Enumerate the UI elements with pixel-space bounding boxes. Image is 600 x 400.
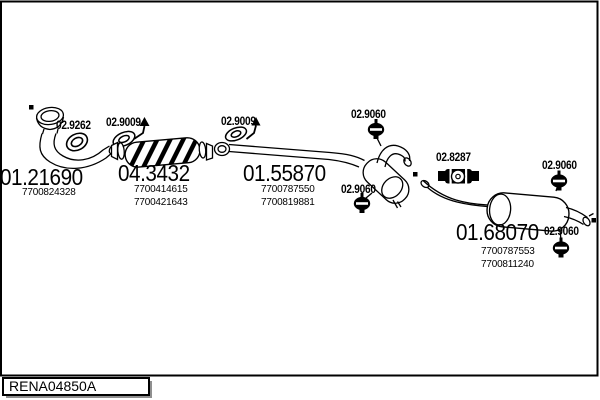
rubber-hanger-icon-1 [368,119,384,139]
fitting-code-clamp-ring: 02.9262 [56,120,91,132]
sleeve-clamp-icon [438,169,479,184]
oem-ref-label: 7700787553 [481,245,535,257]
drawing-reference-tab[interactable]: RENA04850A [2,377,150,396]
fitting-code-hanger-1: 02.9060 [351,109,386,121]
rubber-hanger-icon-4 [553,238,569,258]
oem-ref-label: 7700414615 [134,183,188,195]
oem-ref-label: 7700811240 [481,258,534,270]
fitting-code-hanger-3: 02.9060 [542,160,577,172]
rubber-hanger-icon-3 [551,171,567,191]
oem-ref-label: 7700824328 [22,186,76,198]
oem-ref-label: 7700787550 [261,183,315,195]
fitting-code-gasket-front: 02.9009 [106,117,141,129]
clamp-ring-icon [64,130,91,154]
exhaust-diagram-canvas: 01.21690 04.3432 01.55870 01.68070 77008… [0,0,600,400]
oem-ref-label: 7700819881 [261,196,315,208]
fitting-code-sleeve-clamp: 02.8287 [436,152,471,164]
fitting-code-hanger-4: 02.9060 [544,226,579,238]
fitting-code-gasket-middle: 02.9009 [221,116,256,128]
part-code-rear-silencer: 01.68070 [456,219,539,246]
fitting-code-hanger-2: 02.9060 [341,184,376,196]
oem-ref-label: 7700421643 [134,196,188,208]
